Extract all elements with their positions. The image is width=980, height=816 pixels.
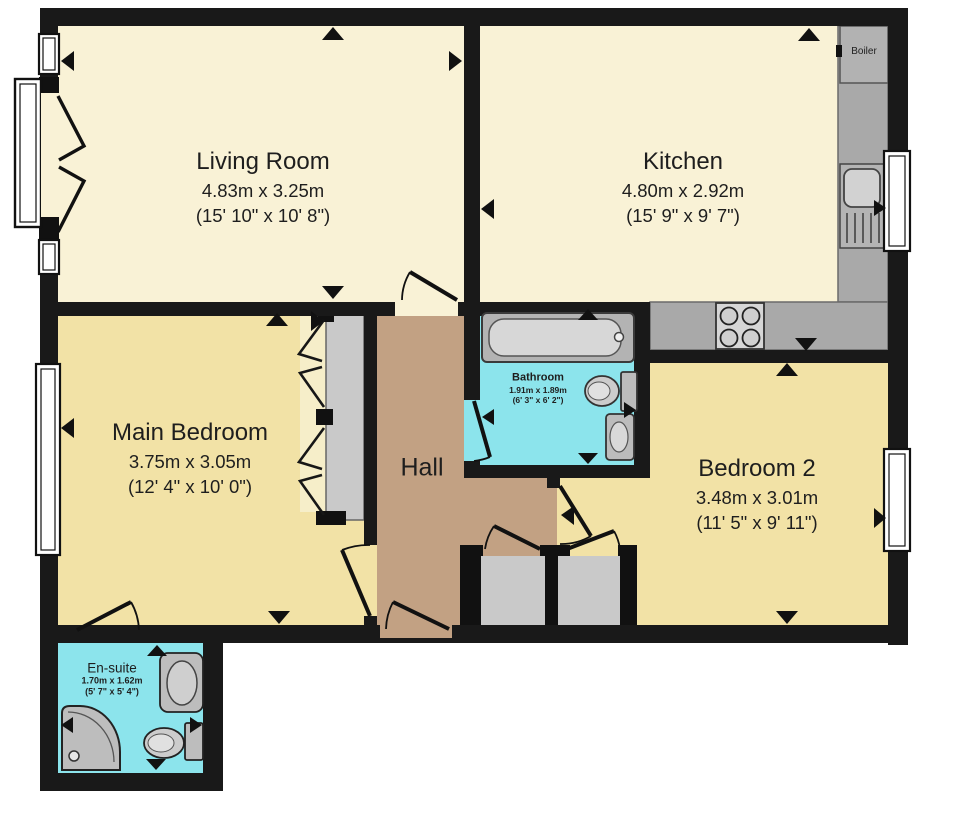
counter-bottom — [650, 302, 888, 350]
kitchen-imperial: (15' 9" x 9' 7") — [626, 207, 740, 226]
window-icon — [884, 449, 910, 551]
living-room-imperial: (15' 10" x 10' 8") — [196, 207, 330, 226]
window-icon — [39, 240, 59, 274]
wardrobe — [299, 312, 364, 525]
hob-icon — [716, 303, 764, 349]
living-room-metric: 4.83m x 3.25m — [202, 182, 324, 201]
bedroom2-name: Bedroom 2 — [698, 457, 815, 481]
ensuite-imperial: (5' 7" x 5' 4") — [85, 688, 139, 697]
main-bedroom-metric: 3.75m x 3.05m — [129, 453, 251, 472]
bedroom2-metric: 3.48m x 3.01m — [696, 489, 818, 508]
ensuite-name: En-suite — [87, 661, 137, 675]
boiler-label: Boiler — [851, 47, 877, 57]
bedroom2-imperial: (11' 5" x 9' 11") — [696, 514, 817, 533]
main-bedroom-imperial: (12' 4" x 10' 0") — [128, 478, 252, 497]
hall-name: Hall — [400, 456, 443, 481]
window-icon — [36, 364, 60, 555]
window-icon — [884, 151, 910, 251]
kitchen-name: Kitchen — [643, 150, 723, 174]
storage-cupboards — [460, 545, 637, 625]
kitchen-metric: 4.80m x 2.92m — [622, 182, 744, 201]
basin-icon — [606, 414, 634, 460]
floorplan-drawing — [0, 0, 980, 816]
cupboard-2 — [558, 556, 620, 625]
cupboard-1 — [481, 556, 545, 625]
bathroom-metric: 1.91m x 1.89m — [509, 386, 567, 395]
opening-living-hall — [395, 302, 458, 316]
bathroom-name: Bathroom — [512, 373, 564, 384]
window-icon — [39, 34, 59, 74]
main-bedroom-name: Main Bedroom — [112, 421, 268, 445]
living-room-name: Living Room — [196, 150, 329, 174]
floorplan: Living Room 4.83m x 3.25m (15' 10" x 10'… — [0, 0, 980, 816]
ensuite-metric: 1.70m x 1.62m — [81, 677, 142, 686]
bath-icon — [482, 313, 634, 362]
basin-icon — [160, 653, 203, 712]
bathroom-imperial: (6' 3" x 6' 2") — [513, 396, 564, 405]
